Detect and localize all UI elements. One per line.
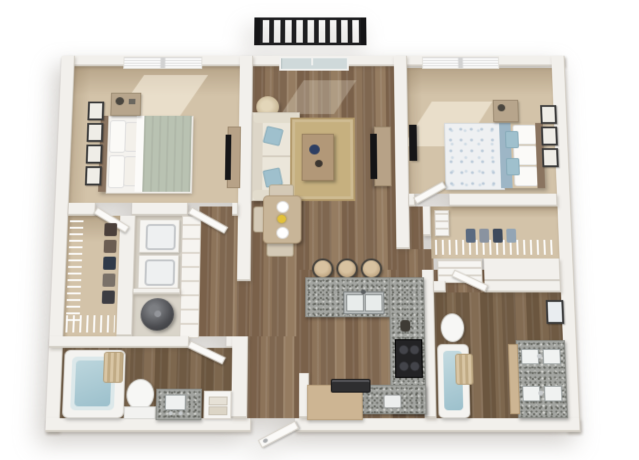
wall-closet2-left xyxy=(423,206,431,236)
flowers-icon xyxy=(277,215,286,223)
wall-art-frame xyxy=(540,105,557,124)
bed1 xyxy=(98,116,192,192)
faucet-icon xyxy=(169,411,173,415)
hall-patch-floor xyxy=(236,281,250,336)
bed2-accent-pillow xyxy=(505,131,519,148)
wall-art-frame xyxy=(541,127,558,146)
sink-basin xyxy=(165,395,186,411)
dining-chair xyxy=(266,242,293,257)
floor-plan xyxy=(37,37,593,440)
wall-bathroom1-right xyxy=(231,336,248,418)
bathroom2-wall-art xyxy=(546,300,565,324)
towel xyxy=(209,397,228,406)
living-tv-stand xyxy=(374,127,392,187)
dining-hall-floor xyxy=(250,277,299,336)
sofa-back xyxy=(253,120,263,192)
decor-item-icon xyxy=(315,160,323,167)
wall-art-frame xyxy=(87,102,104,121)
floor-plan-inner xyxy=(37,52,589,438)
dryer xyxy=(137,255,179,289)
lamp-icon xyxy=(498,104,506,111)
patio-door xyxy=(279,57,349,71)
bedroom1-window xyxy=(123,57,202,69)
range-stove xyxy=(395,339,423,378)
bedroom2-window xyxy=(422,57,499,69)
sink-basin xyxy=(544,386,562,402)
bed2-accent-pillow xyxy=(506,158,520,175)
wall-art-frame xyxy=(542,148,559,167)
sink-basin xyxy=(346,294,364,311)
wall-outer-bottom-left xyxy=(45,418,251,432)
hanging-clothes xyxy=(104,223,117,236)
closet2-shelf-unit xyxy=(434,210,449,236)
nightstand1 xyxy=(110,93,141,116)
hanging-clothes xyxy=(103,257,116,270)
hanging-clothes xyxy=(493,229,503,243)
bedroom2-wall-tv xyxy=(409,125,417,161)
bed2-duvet xyxy=(444,123,505,190)
vanity1 xyxy=(156,389,202,420)
toilet1-tank xyxy=(124,406,156,419)
sink-basin xyxy=(543,349,561,364)
kitchen-island-bar xyxy=(305,277,391,317)
heater-pipe-icon xyxy=(154,310,161,317)
tv-icon xyxy=(225,135,231,180)
floor-plan-scene xyxy=(0,0,639,460)
wall-art-frame xyxy=(85,166,102,185)
plate-icon xyxy=(276,227,289,239)
sofa-pillow xyxy=(263,126,284,146)
washer-lid xyxy=(145,224,176,250)
double-sink xyxy=(343,291,384,314)
vanity2-double xyxy=(516,340,568,418)
wall-art-frame xyxy=(86,145,103,164)
entry-floor xyxy=(247,336,299,418)
wall-bedroom1-bottom-a xyxy=(68,203,95,216)
laundry-louvered-doors xyxy=(179,216,201,339)
bed1-blanket xyxy=(142,116,192,192)
dryer-lid xyxy=(144,259,175,285)
dining-table xyxy=(263,195,302,243)
toilet2 xyxy=(440,313,464,342)
tv-icon xyxy=(370,134,377,179)
wall-closet2-bottom xyxy=(484,259,561,282)
decor-bowl-icon xyxy=(309,145,319,155)
washer xyxy=(139,219,180,252)
bar-stool xyxy=(336,259,358,280)
window-light-patch xyxy=(281,80,356,114)
closet1-wire-shelf-bottom xyxy=(65,315,115,332)
clock-icon xyxy=(129,99,136,104)
plate-icon xyxy=(276,201,289,213)
faucet-icon xyxy=(538,391,543,396)
hanging-clothes xyxy=(102,274,115,287)
towel xyxy=(208,406,227,415)
bed2 xyxy=(444,123,545,188)
wall-bathroom2-top-a xyxy=(434,281,446,292)
wall-bedroom1-bottom-b xyxy=(132,203,188,216)
coffee-table xyxy=(302,134,335,181)
shower-curtain xyxy=(103,352,124,383)
wall-laundry-divider xyxy=(133,289,180,295)
balcony-railing xyxy=(255,17,365,45)
bar-stool xyxy=(361,259,383,280)
towel-cubby xyxy=(203,391,231,420)
hanging-clothes xyxy=(506,229,516,243)
microwave-icon xyxy=(331,379,371,393)
jar-icon xyxy=(400,320,410,331)
lamp-icon xyxy=(115,97,124,105)
nightstand2 xyxy=(493,100,519,122)
wall-bathroom2-top-b xyxy=(485,281,561,292)
door-handle-icon xyxy=(262,438,268,444)
shower-curtain xyxy=(455,354,474,385)
patio-door-divider xyxy=(311,58,313,65)
faucet-icon xyxy=(361,290,366,295)
bar-stool xyxy=(312,259,333,280)
wall-bedroom2-bottom-b xyxy=(449,194,557,207)
wall-art-frame xyxy=(87,123,104,142)
wall-bedroom1-bottom-c xyxy=(232,203,238,216)
entry-door xyxy=(258,421,299,448)
hanging-clothes xyxy=(102,291,115,304)
hanging-clothes xyxy=(466,229,476,243)
sink-basin xyxy=(365,294,383,311)
wall-bathroom1-top-a xyxy=(49,336,189,348)
hanging-clothes xyxy=(479,229,489,243)
hanging-clothes xyxy=(104,240,117,253)
small-appliance-icon xyxy=(383,395,401,409)
wall-outer-bottom-right xyxy=(295,418,581,432)
faucet-icon xyxy=(537,354,542,359)
faucet-icon xyxy=(179,411,183,415)
bedroom1-tv-console xyxy=(227,127,241,189)
